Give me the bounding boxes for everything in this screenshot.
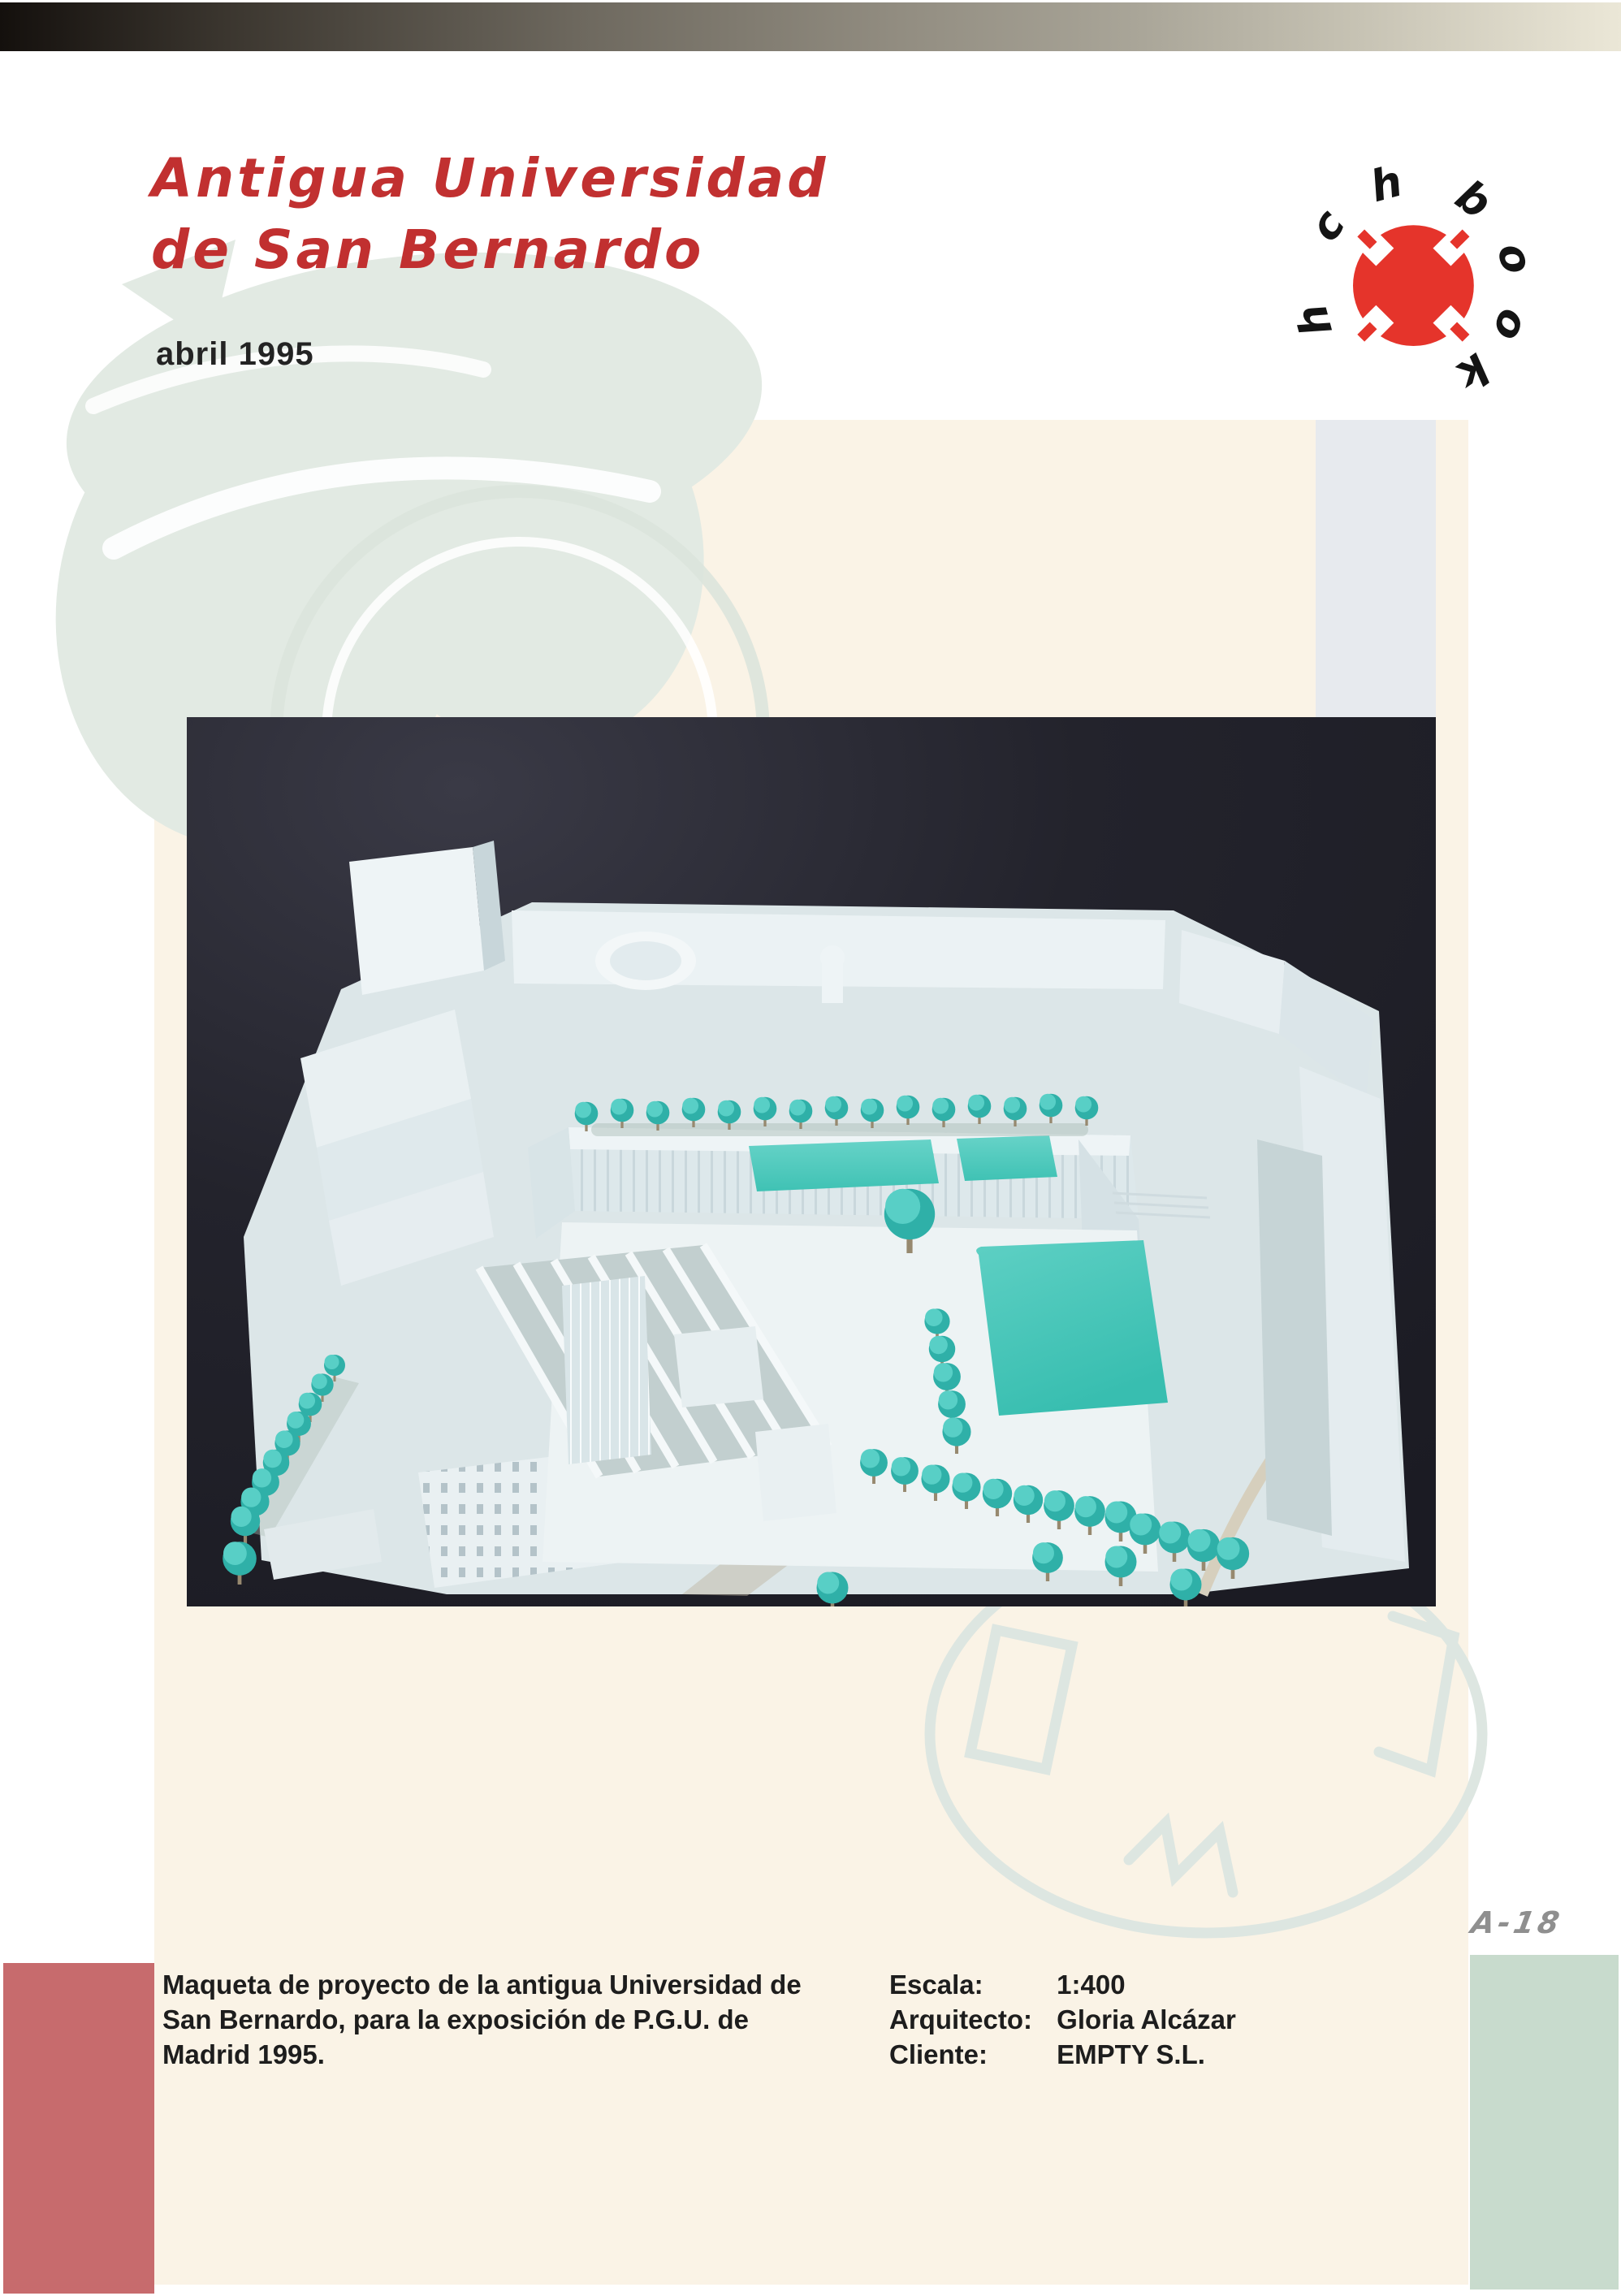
photo-caption: Maqueta de proyecto de la antigua Univer… xyxy=(162,1967,836,2072)
svg-text:b: b xyxy=(1446,171,1500,229)
project-title-line1: Antigua Universidad xyxy=(151,143,828,214)
svg-text:h: h xyxy=(1286,299,1342,341)
caption-line: Madrid 1995. xyxy=(162,2037,836,2072)
detail-value: 1:400 xyxy=(1057,1970,1125,2000)
circle-sketch-decoration xyxy=(885,1580,1527,1953)
model-photograph xyxy=(187,717,1436,1606)
mint-accent-bar xyxy=(1470,1955,1619,2290)
svg-text:c: c xyxy=(1300,201,1355,250)
detail-label: Arquitecto: xyxy=(889,2002,1049,2037)
svg-text:o: o xyxy=(1482,302,1533,348)
detail-label: Cliente: xyxy=(889,2037,1049,2072)
salmon-accent-block xyxy=(3,1963,154,2294)
svg-text:o: o xyxy=(1487,238,1533,279)
bluegray-accent-bar xyxy=(1316,420,1436,720)
detail-value: Gloria Alcázar xyxy=(1057,2004,1236,2034)
svg-text:h: h xyxy=(1365,157,1407,213)
detail-row-arquitecto: Arquitecto: Gloria Alcázar xyxy=(889,2002,1236,2037)
hch-book-logo: h c h b o o k xyxy=(1273,145,1533,396)
project-title: Antigua Universidad de San Bernardo xyxy=(151,143,828,286)
page-number: A-18 xyxy=(1468,1905,1565,1940)
detail-row-cliente: Cliente: EMPTY S.L. xyxy=(889,2037,1236,2072)
model-photo-art xyxy=(187,717,1436,1606)
caption-line: Maqueta de proyecto de la antigua Univer… xyxy=(162,1967,836,2002)
logo-circle xyxy=(1347,219,1479,351)
detail-value: EMPTY S.L. xyxy=(1057,2039,1205,2069)
project-date: abril 1995 xyxy=(156,336,314,373)
caption-line: San Bernardo, para la exposición de P.G.… xyxy=(162,2002,836,2037)
detail-label: Escala: xyxy=(889,1967,1049,2002)
top-gradient-bar xyxy=(0,2,1621,51)
detail-row-escala: Escala: 1:400 xyxy=(889,1967,1236,2002)
project-details: Escala: 1:400 Arquitecto: Gloria Alcázar… xyxy=(889,1967,1236,2072)
project-title-line2: de San Bernardo xyxy=(151,214,828,286)
svg-text:k: k xyxy=(1446,343,1499,396)
portfolio-page: Antigua Universidad de San Bernardo abri… xyxy=(0,0,1621,2296)
